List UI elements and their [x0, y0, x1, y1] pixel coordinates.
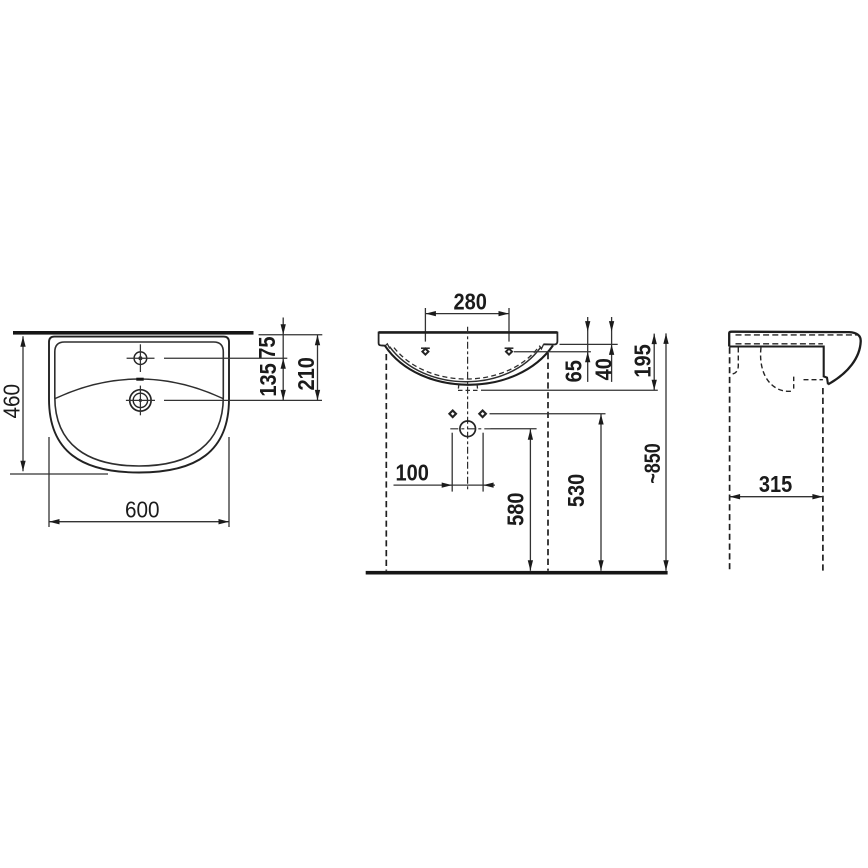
svg-text:135: 135: [255, 363, 282, 396]
svg-text:460: 460: [0, 384, 25, 419]
svg-text:530: 530: [563, 474, 590, 507]
svg-text:100: 100: [396, 459, 429, 486]
svg-text:75: 75: [253, 336, 280, 358]
svg-text:600: 600: [125, 497, 160, 523]
svg-text:210: 210: [292, 357, 319, 390]
svg-text:195: 195: [629, 344, 656, 377]
svg-text:280: 280: [454, 288, 487, 315]
svg-text:315: 315: [759, 471, 792, 498]
svg-text:40: 40: [590, 358, 617, 380]
svg-text:65: 65: [560, 360, 587, 382]
svg-text:580: 580: [502, 493, 529, 526]
svg-text:~850: ~850: [641, 443, 665, 484]
